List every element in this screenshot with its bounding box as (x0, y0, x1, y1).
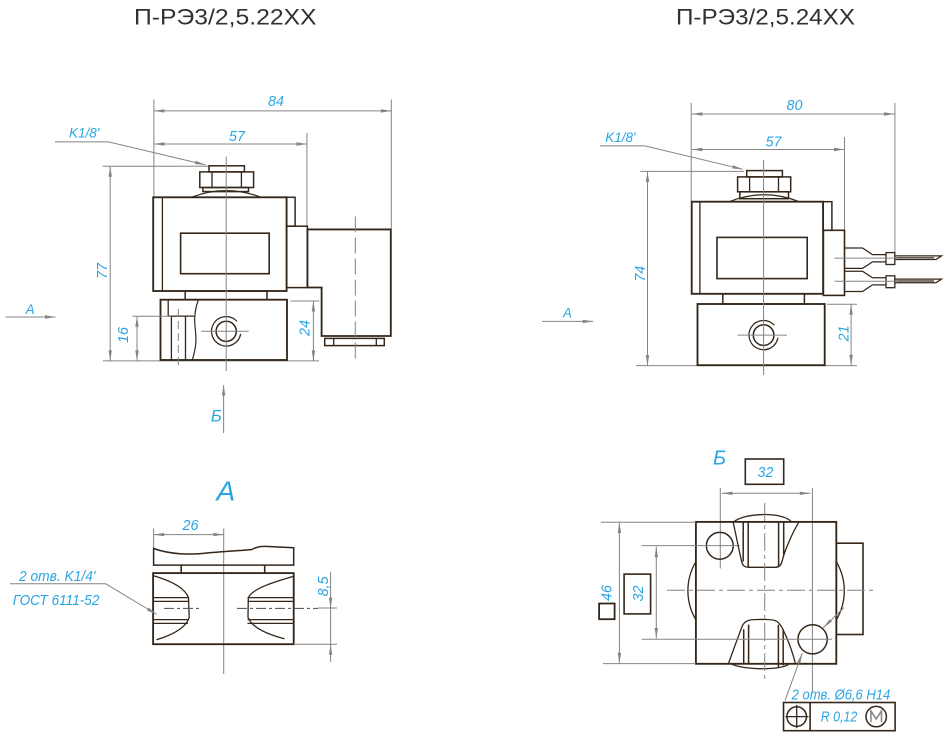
svg-text:46: 46 (600, 585, 616, 601)
svg-text:K1/8': K1/8' (605, 130, 636, 145)
svg-text:26: 26 (182, 518, 199, 534)
svg-text:ГОСТ 6111-52: ГОСТ 6111-52 (13, 593, 100, 609)
svg-text:80: 80 (787, 98, 803, 114)
svg-text:21: 21 (837, 325, 853, 342)
svg-text:K1/8': K1/8' (69, 126, 100, 141)
svg-text:A: A (562, 306, 572, 321)
svg-text:R 0,12: R 0,12 (821, 710, 858, 726)
svg-text:32: 32 (631, 586, 647, 602)
svg-text:57: 57 (229, 129, 246, 145)
svg-text:A: A (25, 302, 35, 317)
svg-text:84: 84 (268, 94, 284, 110)
svg-text:57: 57 (766, 134, 783, 150)
svg-text:32: 32 (758, 465, 774, 481)
svg-text:П-РЭ3/2,5.22ХХ: П-РЭ3/2,5.22ХХ (134, 4, 317, 29)
svg-text:2 отв. Ø6,6 H14: 2 отв. Ø6,6 H14 (791, 688, 891, 704)
svg-text:16: 16 (116, 327, 132, 343)
svg-text:Б: Б (713, 448, 726, 470)
svg-text:Б: Б (211, 407, 222, 426)
svg-text:П-РЭ3/2,5.24ХХ: П-РЭ3/2,5.24ХХ (676, 4, 855, 29)
svg-text:77: 77 (95, 262, 111, 279)
svg-text:8,5: 8,5 (316, 576, 332, 596)
svg-text:74: 74 (633, 266, 649, 282)
svg-text:A: A (214, 476, 235, 507)
svg-text:24: 24 (298, 320, 314, 337)
svg-text:2 отв. K1/4': 2 отв. K1/4' (18, 569, 97, 585)
